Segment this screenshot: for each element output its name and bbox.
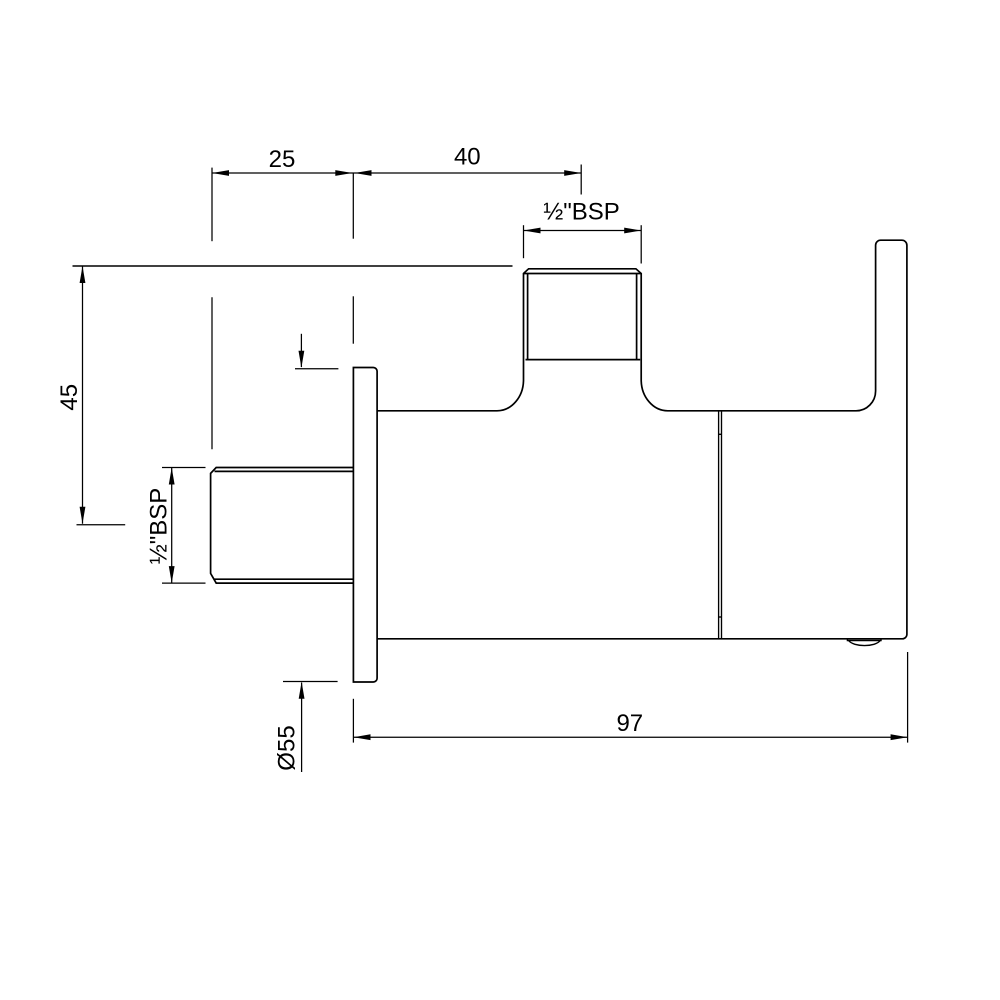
svg-text:½"BSP: ½"BSP <box>543 199 620 226</box>
svg-text:45: 45 <box>56 384 83 411</box>
svg-text:Ø55: Ø55 <box>274 725 301 770</box>
svg-text:97: 97 <box>616 710 643 737</box>
svg-text:25: 25 <box>269 146 296 173</box>
svg-text:40: 40 <box>454 144 481 171</box>
svg-text:½"BSP: ½"BSP <box>146 488 173 565</box>
